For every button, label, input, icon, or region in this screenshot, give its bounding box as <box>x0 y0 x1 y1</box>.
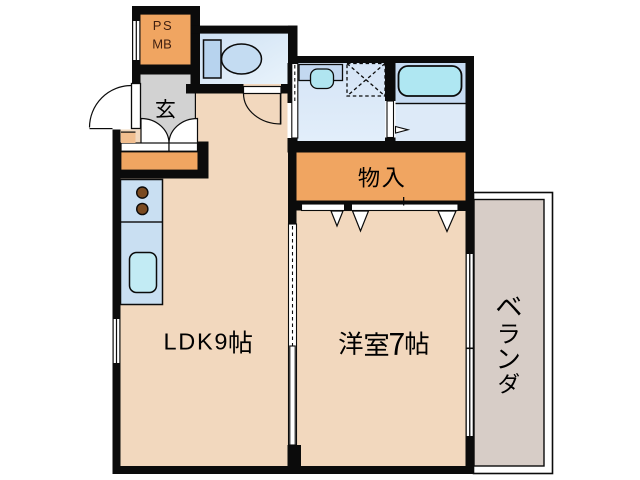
svg-text:LDK9: LDK9 <box>164 329 230 355</box>
svg-text:MB: MB <box>152 37 172 52</box>
svg-text:PS: PS <box>153 18 173 33</box>
